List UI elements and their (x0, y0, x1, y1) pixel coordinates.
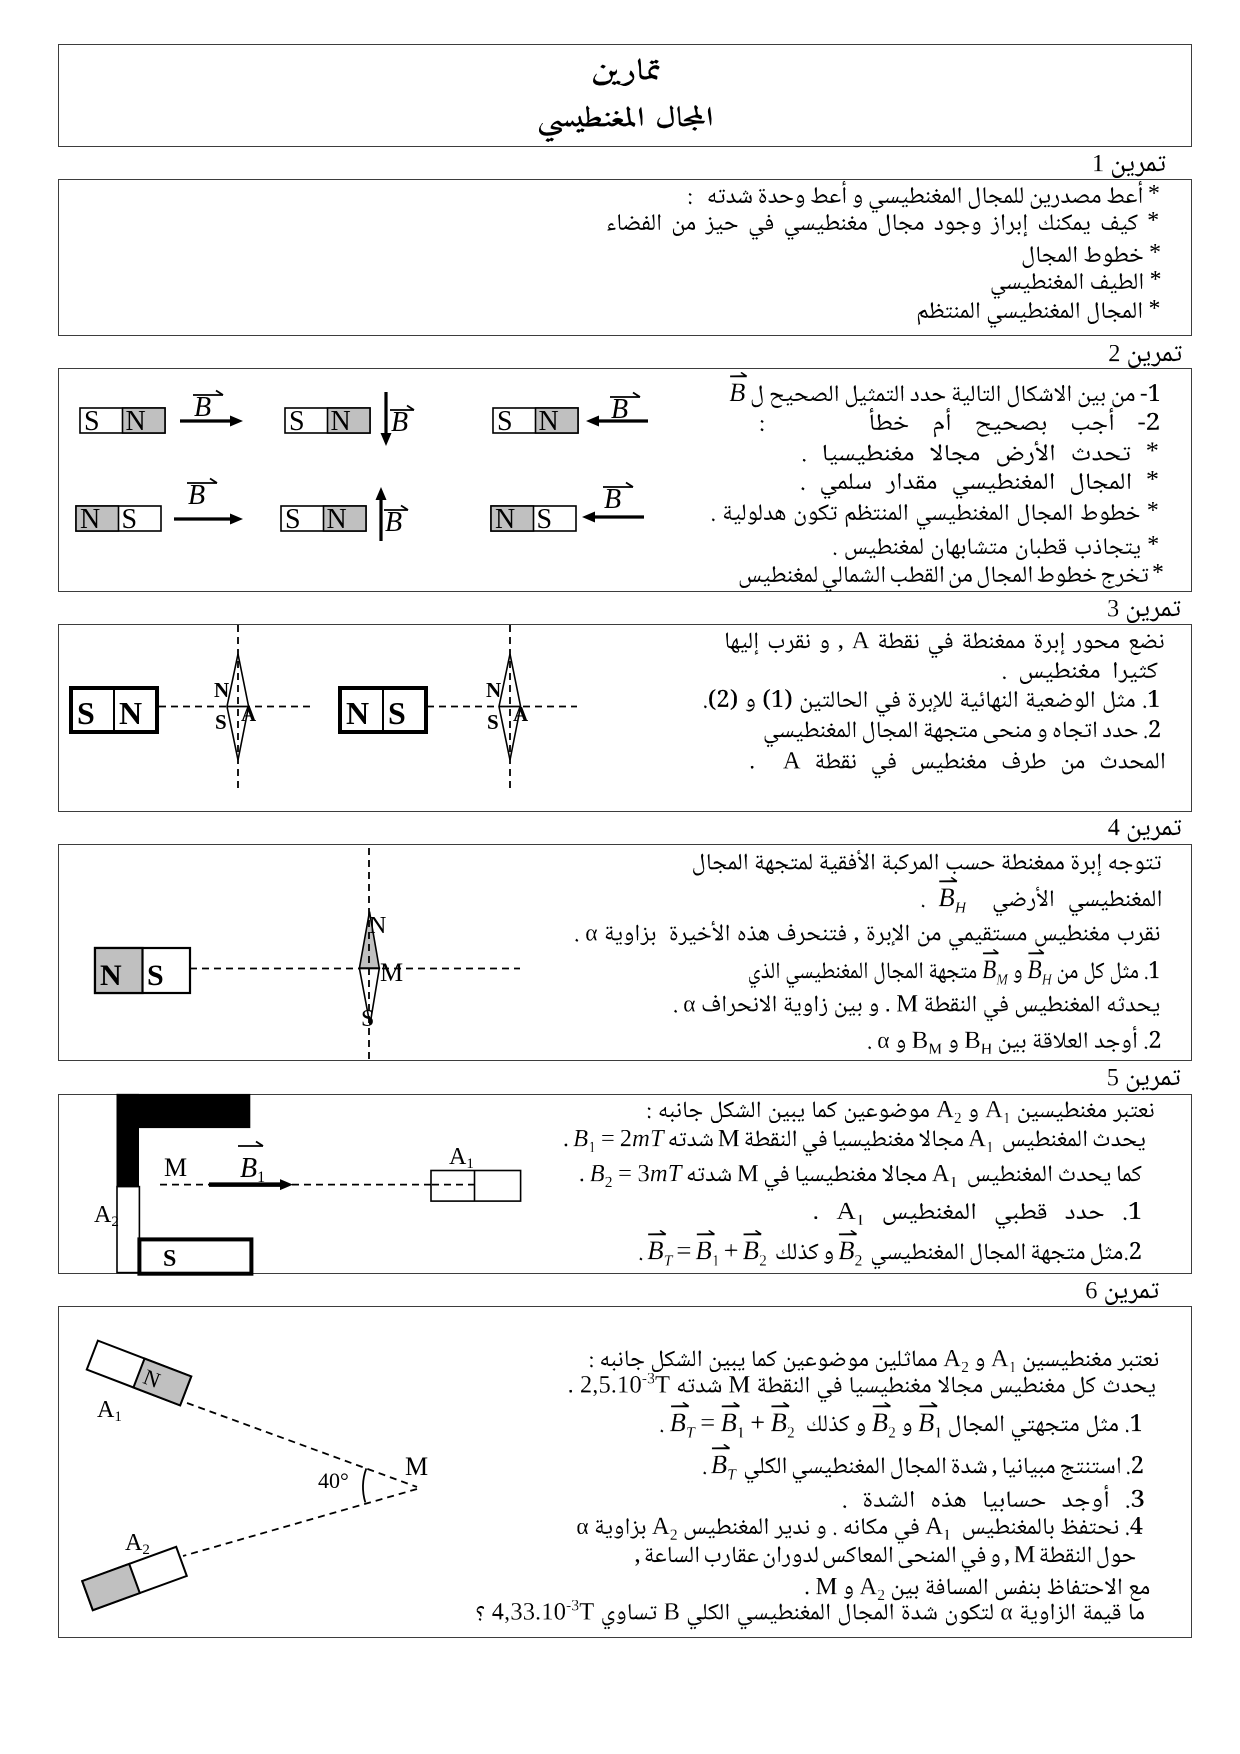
svg-text:S: S (84, 406, 100, 437)
svg-text:A1: A1 (97, 1397, 122, 1425)
svg-text:N: N (495, 504, 515, 535)
svg-text:B: B (188, 480, 205, 511)
svg-text:S: S (497, 406, 513, 437)
svg-text:A: A (241, 702, 257, 726)
svg-text:A2: A2 (125, 1530, 150, 1558)
svg-text:N: N (327, 504, 347, 535)
svg-text:40°: 40° (318, 1468, 349, 1493)
svg-text:N: N (331, 406, 351, 437)
svg-text:S: S (537, 504, 553, 535)
svg-text:B: B (385, 507, 402, 538)
svg-text:S: S (289, 406, 305, 437)
svg-text:N: N (486, 678, 501, 702)
svg-text:M: M (380, 958, 403, 987)
svg-text:S: S (215, 710, 227, 734)
svg-text:S: S (487, 710, 499, 734)
svg-text:N: N (100, 959, 122, 992)
svg-text:S: S (77, 695, 95, 731)
svg-text:S: S (163, 1246, 176, 1272)
svg-text:N: N (80, 504, 100, 535)
svg-text:N: N (346, 695, 369, 731)
svg-text:N: N (214, 678, 229, 702)
svg-text:S: S (361, 1006, 374, 1032)
svg-text:N: N (539, 406, 559, 437)
svg-text:S: S (122, 504, 138, 535)
svg-text:A2: A2 (94, 1202, 119, 1230)
svg-text:S: S (285, 504, 301, 535)
svg-text:S: S (388, 695, 406, 731)
svg-text:B: B (611, 394, 628, 425)
svg-text:N: N (369, 913, 386, 939)
svg-text:B: B (604, 484, 621, 515)
svg-text:M: M (164, 1153, 187, 1182)
svg-text:M: M (405, 1452, 428, 1481)
svg-text:N: N (126, 406, 146, 437)
svg-text:A: A (513, 702, 529, 726)
svg-text:N: N (119, 695, 142, 731)
svg-text:S: S (147, 959, 164, 992)
svg-text:B1: B1 (240, 1153, 265, 1186)
svg-text:A1: A1 (449, 1144, 474, 1172)
svg-text:B: B (391, 407, 408, 438)
svg-text:B: B (194, 392, 211, 423)
